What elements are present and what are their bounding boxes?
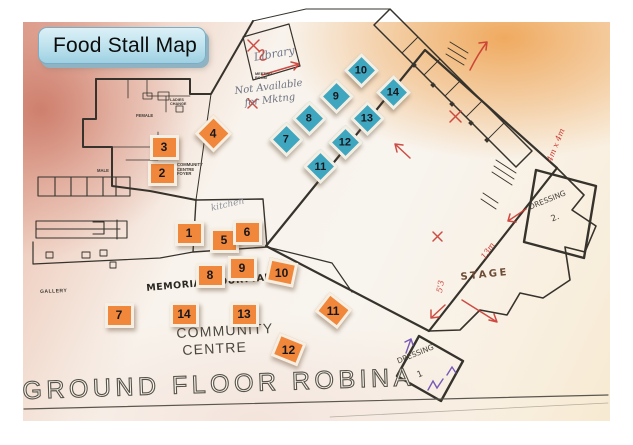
- marker-number: 13: [361, 112, 373, 124]
- marker-number: 10: [274, 265, 287, 279]
- title-badge: Food Stall Map: [38, 27, 206, 64]
- marker-number: 10: [355, 64, 367, 76]
- female-label: FEMALE: [136, 114, 153, 119]
- orange-stall-marker-14: 14: [170, 302, 199, 327]
- orange-stall-marker-7: 7: [105, 303, 134, 328]
- orange-stall-marker-8: 8: [196, 263, 225, 288]
- page-title: Food Stall Map: [53, 34, 197, 58]
- marker-number: 1: [186, 226, 193, 240]
- orange-stall-marker-6: 6: [233, 220, 262, 245]
- ladies-label: LADIES CHANGE: [170, 98, 186, 107]
- orange-stall-marker-9: 9: [228, 256, 257, 281]
- orange-stall-marker-1: 1: [175, 221, 204, 246]
- marker-number: 11: [327, 303, 340, 317]
- marker-number: 8: [306, 112, 312, 124]
- orange-stall-marker-13: 13: [230, 302, 259, 327]
- marker-number: 9: [333, 90, 339, 102]
- marker-number: 7: [116, 308, 123, 322]
- meeting-room-label: MEETING ROOM: [255, 72, 272, 81]
- marker-number: 13: [237, 307, 250, 321]
- marker-number: 7: [283, 133, 289, 145]
- marker-number: 14: [387, 86, 399, 98]
- marker-number: 5: [221, 233, 228, 247]
- marker-number: 9: [239, 261, 246, 275]
- plan-layer: GROUND FLOOR ROBINACOMMUNITYCENTREGALLER…: [0, 0, 633, 445]
- orange-stall-marker-2: 2: [148, 161, 177, 186]
- marker-number: 8: [207, 268, 214, 282]
- marker-number: 12: [339, 136, 351, 148]
- orange-stall-marker-3: 3: [150, 135, 179, 160]
- marker-number: 12: [281, 342, 294, 356]
- marker-number: 4: [210, 126, 217, 140]
- male-label: MALE: [97, 169, 109, 174]
- gallery-label: GALLERY: [40, 289, 67, 296]
- marker-number: 2: [159, 166, 166, 180]
- marker-number: 3: [161, 140, 168, 154]
- marker-number: 14: [177, 307, 190, 321]
- slide-canvas: { "title": "Food Stall Map", "map": { "p…: [0, 0, 633, 445]
- marker-number: 11: [314, 160, 326, 172]
- marker-number: 6: [244, 225, 251, 239]
- orange-stall-marker-10: 10: [264, 257, 298, 287]
- community-centre-foyer-label: COMMUNITY CENTRE FOYER: [177, 163, 203, 177]
